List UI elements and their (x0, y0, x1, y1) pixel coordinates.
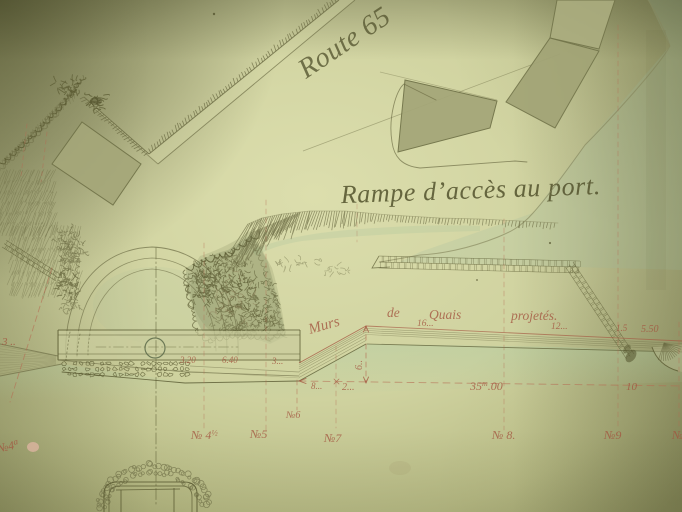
svg-text:№7: №7 (323, 431, 342, 445)
svg-text:6..: 6.. (354, 360, 365, 370)
svg-text:№6: №6 (285, 410, 300, 421)
svg-text:№1: №1 (671, 428, 682, 442)
svg-text:10: 10 (626, 381, 638, 393)
svg-text:6.40: 6.40 (222, 355, 238, 365)
svg-text:16...: 16... (417, 319, 434, 329)
svg-text:12...: 12... (551, 322, 568, 332)
svg-text:3 ..: 3 .. (1, 336, 16, 348)
svg-text:Quais: Quais (429, 307, 461, 322)
svg-text:projetés.: projetés. (510, 308, 557, 323)
svg-text:№9: №9 (603, 428, 621, 442)
svg-text:8...: 8... (311, 381, 322, 391)
svg-text:de: de (387, 305, 400, 320)
svg-text:3...: 3... (271, 356, 283, 366)
svg-text:№5: №5 (249, 427, 267, 441)
svg-text:5.50: 5.50 (641, 324, 659, 335)
svg-text:2...: 2... (342, 382, 355, 393)
svg-text:1.5: 1.5 (616, 323, 628, 333)
svg-text:№ 8.: № 8. (491, 428, 515, 442)
svg-text:3.20: 3.20 (179, 355, 196, 365)
